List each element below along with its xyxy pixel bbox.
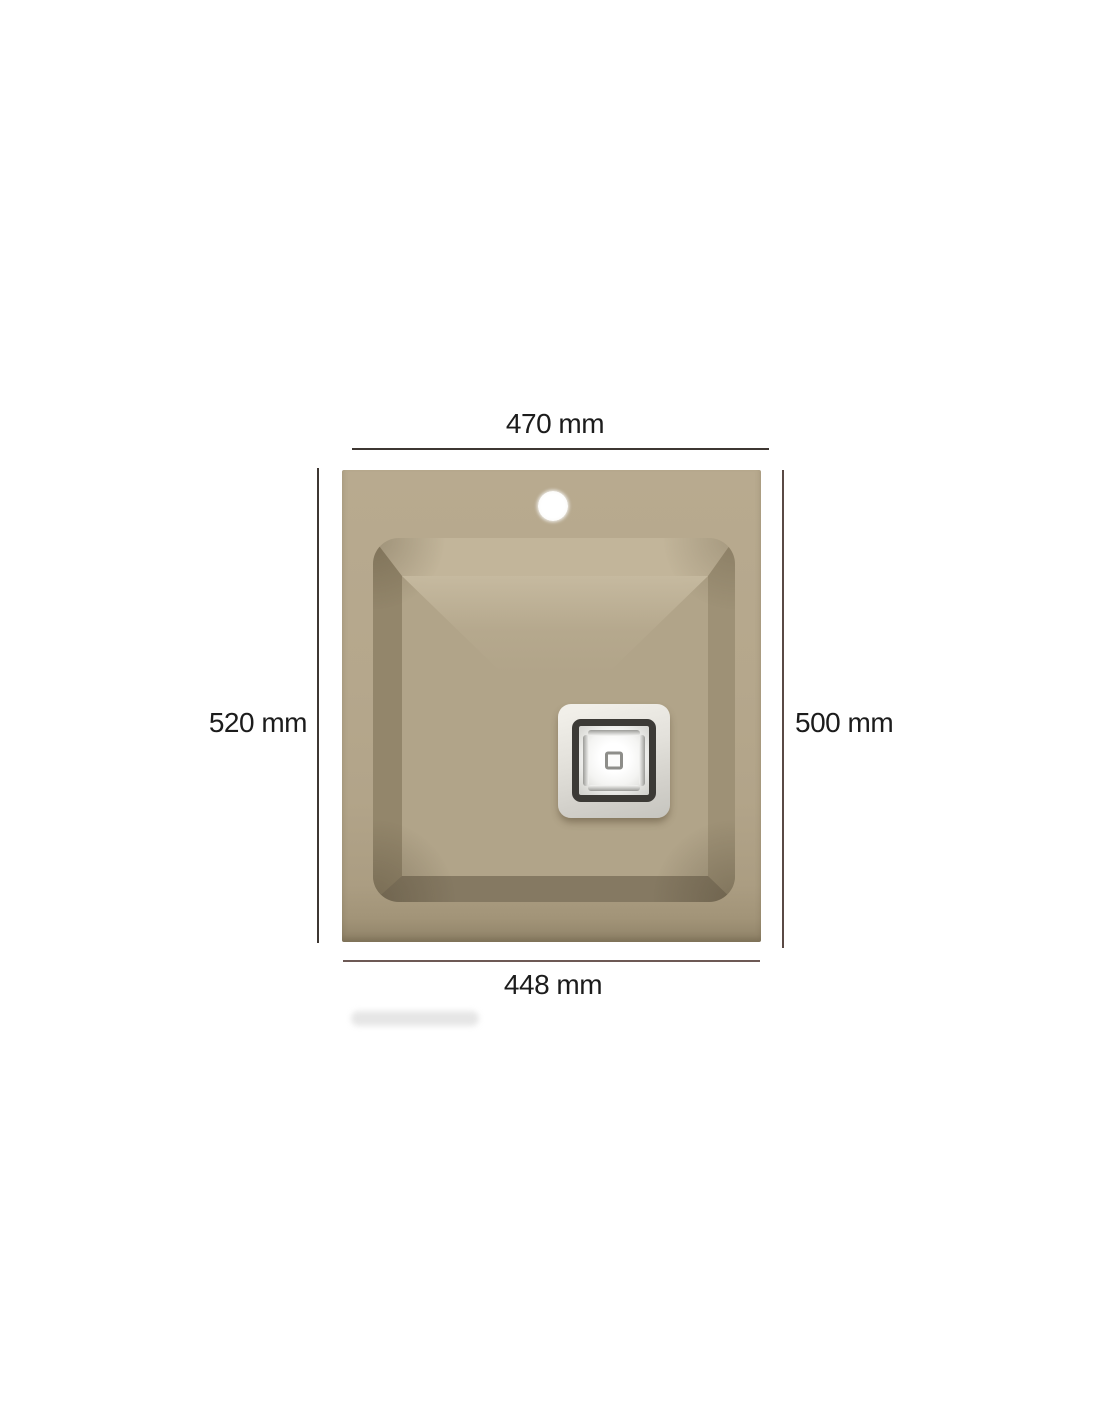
faucet-hole: [538, 491, 568, 521]
drain-ring: [572, 719, 656, 802]
sink-dimension-diagram: 470 mm 520 mm 500 mm 448 mm: [0, 0, 1100, 1422]
dimension-label-right-height: 500 mm: [795, 709, 1002, 737]
drain-center-cap: [605, 751, 623, 769]
basin-slope: [402, 576, 708, 674]
drain-slot-left: [583, 735, 589, 786]
dimension-line-bottom: [343, 960, 760, 962]
dimension-label-left-height: 520 mm: [100, 709, 307, 737]
sink-top-view: [342, 470, 761, 942]
dimension-label-top-width: 470 mm: [455, 410, 655, 438]
watermark-smudge: [351, 1011, 479, 1026]
dimension-line-left: [317, 468, 319, 943]
drain-slot-bottom: [588, 785, 640, 791]
square-drain: [558, 704, 670, 818]
dimension-line-top: [352, 448, 769, 450]
drain-slot-right: [639, 735, 645, 786]
drain-slot-top: [588, 730, 640, 736]
dimension-line-right: [782, 470, 784, 948]
sink-basin: [373, 538, 735, 902]
dimension-label-bottom-width: 448 mm: [453, 971, 653, 999]
